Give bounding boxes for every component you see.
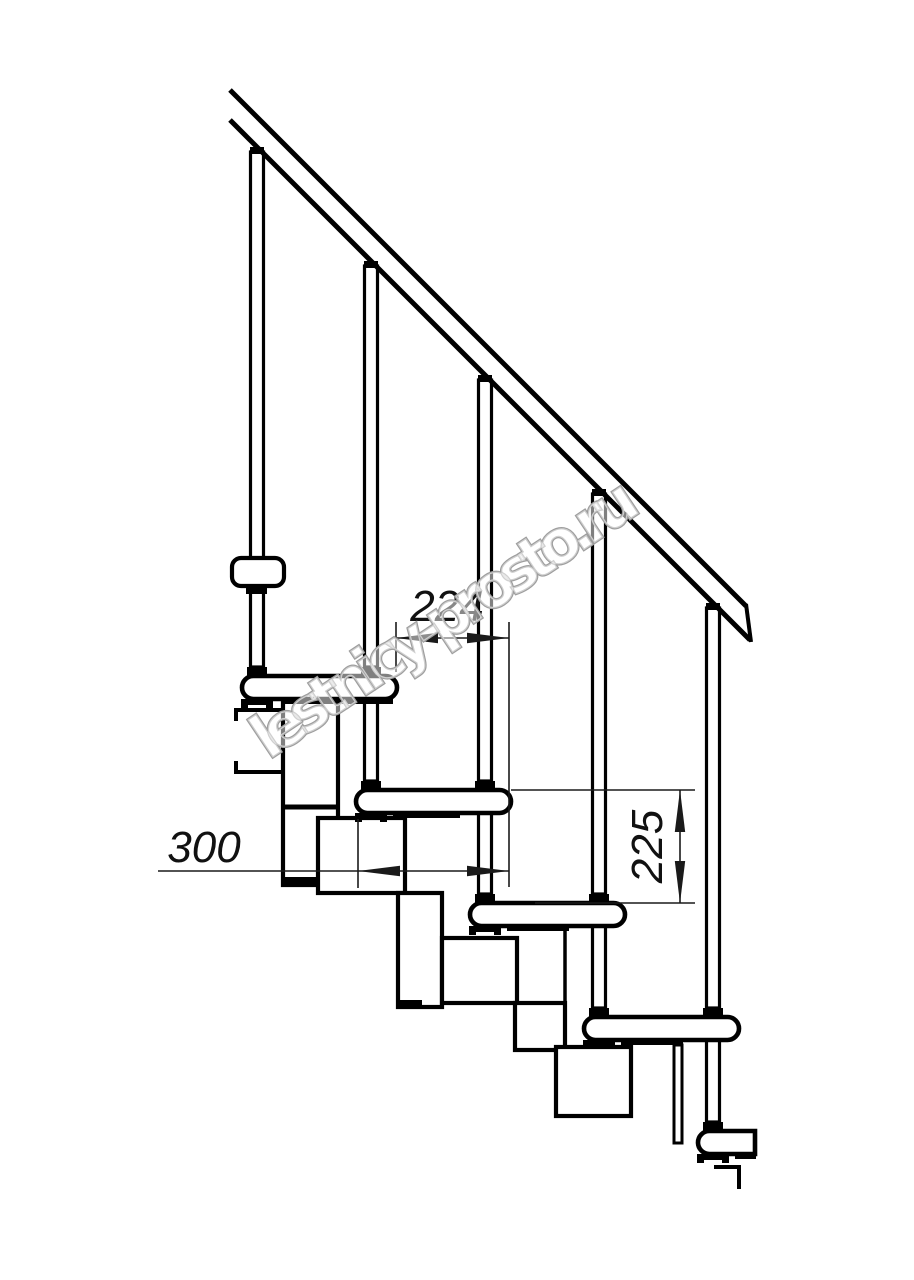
baluster-1-bracket bbox=[232, 558, 284, 586]
baluster-1 bbox=[247, 147, 267, 676]
dimension-rise-label: 225 bbox=[623, 809, 672, 884]
staircase-technical-drawing: 224 300 225 lestnicy-prosto.ru bbox=[0, 0, 914, 1280]
support-module-2 bbox=[442, 938, 517, 1003]
baluster-4-lower-shaft bbox=[593, 926, 606, 1008]
baluster-1-bracket-collar bbox=[246, 586, 267, 594]
baluster-2-shaft bbox=[365, 266, 378, 667]
tread-2 bbox=[356, 790, 511, 813]
tread-4 bbox=[584, 1017, 739, 1040]
dimension-depth-label: 300 bbox=[167, 823, 241, 872]
tread-5-clamp-bar bbox=[735, 1154, 756, 1159]
tread-4-clamp-bar bbox=[621, 1040, 683, 1045]
tread-5-clamp bbox=[697, 1154, 729, 1163]
arrow-down-icon bbox=[675, 861, 685, 903]
tread-5 bbox=[698, 1131, 755, 1154]
tread-3 bbox=[470, 903, 625, 926]
baluster-5 bbox=[703, 603, 723, 1131]
support-module-3 bbox=[556, 1047, 631, 1116]
support-break-line bbox=[714, 1167, 739, 1189]
support-strut-2 bbox=[398, 893, 442, 1007]
baluster-5-lower-shaft bbox=[707, 1040, 720, 1122]
baluster-3-lower-shaft bbox=[479, 813, 492, 894]
support-strut-2-foot bbox=[396, 1000, 422, 1007]
arrow-up-icon bbox=[675, 790, 685, 832]
watermark-text: lestnicy-prosto.ru bbox=[238, 468, 647, 773]
drawing-page: 224 300 225 lestnicy-prosto.ru bbox=[0, 0, 914, 1280]
support-strut-3 bbox=[515, 1003, 565, 1050]
baluster-4 bbox=[589, 489, 609, 1017]
support-hanger-4 bbox=[674, 1045, 682, 1143]
tread-2-clamp-bar bbox=[393, 813, 460, 818]
tread-3-clamp-bar bbox=[507, 926, 569, 931]
baluster-5-shaft bbox=[707, 608, 720, 1008]
support-module-1 bbox=[318, 818, 405, 893]
tread-3-clamp bbox=[469, 926, 501, 935]
